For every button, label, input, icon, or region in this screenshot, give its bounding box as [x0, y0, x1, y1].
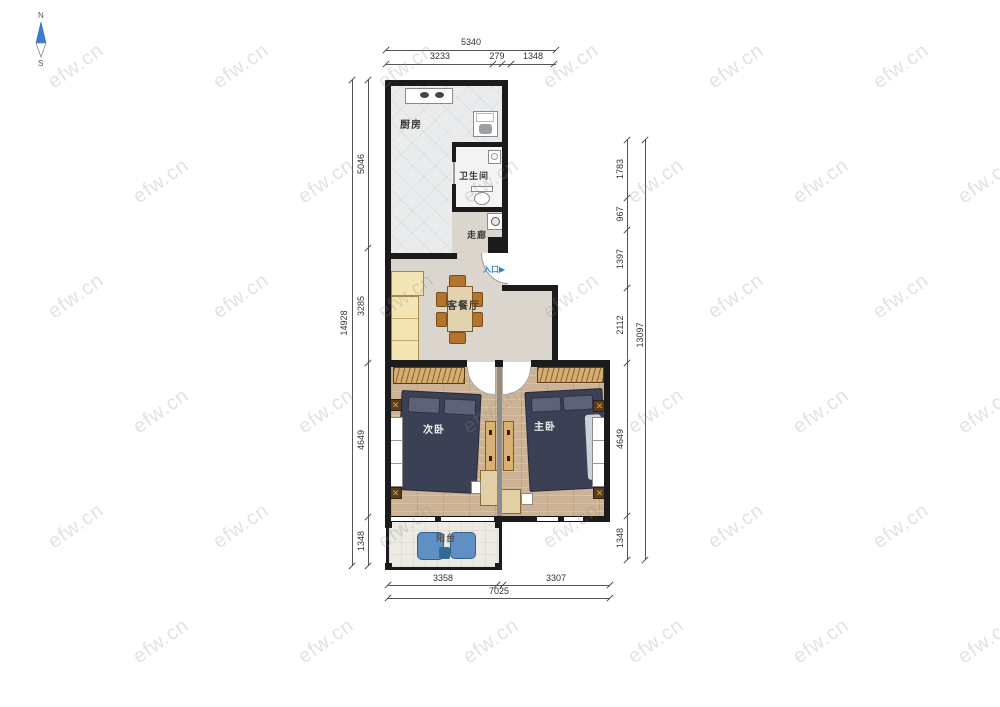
entrance-arrow-icon: ▶: [499, 265, 505, 274]
master-bedroom-label: 主卧: [534, 418, 556, 433]
dimension-label: 3358: [433, 573, 453, 583]
dimension-line: [386, 64, 556, 65]
compass-needle-icon: [33, 21, 49, 59]
window-mullion: [435, 516, 441, 522]
wall: [583, 516, 610, 522]
bedroom-divider-wall: [497, 367, 502, 516]
balcony-floor: [389, 522, 499, 567]
watermark-text: efw.cn: [539, 39, 604, 94]
balcony-table: [439, 547, 450, 559]
wall: [452, 142, 508, 147]
wall: [531, 360, 610, 367]
sofa-cushion-line: [392, 318, 418, 319]
dimension-label: 5340: [461, 37, 481, 47]
dimension-label: 1783: [615, 159, 625, 179]
washer-drum-icon: [491, 217, 500, 226]
closet-unit: [485, 421, 496, 471]
sofa-cushion-line: [392, 340, 418, 341]
dimension-label: 5046: [356, 154, 366, 174]
desk: [500, 489, 521, 514]
window-mullion: [558, 516, 564, 522]
wall: [385, 253, 457, 259]
dimension-label: 14928: [339, 310, 349, 335]
window: [391, 516, 494, 522]
dimension-tick: [623, 556, 630, 563]
dimension-tick: [550, 60, 557, 67]
watermark-text: efw.cn: [209, 39, 274, 94]
dining-chair: [472, 312, 483, 327]
wall: [452, 207, 508, 212]
wall: [604, 360, 610, 522]
watermark-text: efw.cn: [624, 154, 689, 209]
dimension-tick: [348, 562, 355, 569]
watermark-text: efw.cn: [44, 269, 109, 324]
watermark-text: efw.cn: [954, 154, 1000, 209]
entrance-label: 入口▶: [483, 264, 505, 275]
dimension-label: 1348: [523, 51, 543, 61]
balcony-corner: [495, 563, 502, 570]
dimension-label: 4649: [356, 430, 366, 450]
dimension-tick: [552, 46, 559, 53]
closet-unit: [503, 421, 514, 471]
closet-knob: [507, 430, 510, 435]
dimension-line: [368, 80, 369, 566]
watermark-text: efw.cn: [209, 269, 274, 324]
balcony-corner: [385, 563, 392, 570]
compass-south-label: S: [38, 59, 43, 68]
watermark-text: efw.cn: [129, 384, 194, 439]
wardrobe: [393, 367, 465, 384]
dimension-label: 1348: [615, 528, 625, 548]
balcony-corner: [385, 521, 392, 528]
kitchen-label: 厨房: [400, 116, 422, 131]
dimension-label: 1397: [615, 249, 625, 269]
desk-chair: [471, 481, 481, 494]
wall: [452, 147, 456, 162]
watermark-text: efw.cn: [869, 499, 934, 554]
sofa: [391, 296, 419, 362]
compass-north-label: N: [38, 11, 44, 20]
dimension-label: 3233: [430, 51, 450, 61]
living-dining-label: 客餐厅: [447, 297, 480, 312]
dining-chair: [449, 332, 466, 344]
floor-plan-canvas: ✕ ✕ ✕ ✕ 厨房 卫生间 走廊 客餐厅 次卧 主卧 阳台: [0, 0, 1000, 707]
second-bedroom-label: 次卧: [423, 421, 445, 436]
watermark-text: efw.cn: [294, 614, 359, 669]
watermark-text: efw.cn: [624, 384, 689, 439]
kitchen-counter: [405, 88, 453, 104]
dimension-tick: [606, 581, 613, 588]
dimension-label: 3307: [546, 573, 566, 583]
wardrobe: [537, 367, 604, 383]
dining-chair: [436, 312, 447, 327]
watermark-text: efw.cn: [954, 384, 1000, 439]
wall: [385, 360, 467, 367]
living-floor-right: [508, 285, 552, 362]
dimension-line: [645, 140, 646, 560]
watermark-text: efw.cn: [459, 614, 524, 669]
dimension-label: 4649: [615, 429, 625, 449]
dimension-line: [352, 80, 353, 566]
corridor-label: 走廊: [467, 228, 487, 241]
watermark-text: efw.cn: [704, 39, 769, 94]
dimension-label: 1348: [356, 531, 366, 551]
wall-pillar: [488, 237, 506, 253]
watermark-text: efw.cn: [294, 384, 359, 439]
bath-sink-bowl-icon: [491, 153, 498, 160]
watermark-text: efw.cn: [624, 614, 689, 669]
watermark-text: efw.cn: [44, 39, 109, 94]
dimension-line: [627, 140, 628, 560]
sink-bowl-icon: [479, 124, 492, 134]
bathroom-door: [453, 162, 455, 184]
watermark-text: efw.cn: [869, 39, 934, 94]
sink-drainer: [476, 113, 494, 122]
watermark-text: efw.cn: [129, 154, 194, 209]
bed-second-bedroom: [396, 390, 481, 494]
watermark-text: efw.cn: [294, 154, 359, 209]
watermark-text: efw.cn: [869, 269, 934, 324]
balcony-corner: [495, 521, 502, 528]
wall: [385, 80, 508, 86]
watermark-text: efw.cn: [704, 269, 769, 324]
dimension-label: 13097: [635, 322, 645, 347]
watermark-text: efw.cn: [789, 384, 854, 439]
dimension-tick: [641, 556, 648, 563]
wall: [495, 360, 503, 367]
watermark-text: efw.cn: [129, 614, 194, 669]
dimension-label: 967: [615, 206, 625, 221]
toilet-icon: [474, 192, 490, 205]
balcony-wall: [386, 567, 502, 570]
stove-burner-icon: [435, 92, 444, 98]
dimension-label: 7025: [489, 586, 509, 596]
dimension-tick: [364, 562, 371, 569]
closet-knob: [507, 456, 510, 461]
sofa-chaise: [391, 271, 424, 296]
stove-burner-icon: [420, 92, 429, 98]
watermark-text: efw.cn: [789, 614, 854, 669]
wall: [385, 80, 391, 522]
desk-chair: [521, 493, 533, 505]
balcony-label: 阳台: [436, 531, 456, 544]
dimension-line: [388, 598, 610, 599]
dimension-label: 279: [489, 51, 504, 61]
dimension-label: 3285: [356, 296, 366, 316]
dining-chair: [436, 292, 447, 307]
wall: [502, 80, 508, 253]
wall: [552, 285, 558, 367]
closet-knob: [489, 430, 492, 435]
entrance-text: 入口: [483, 265, 499, 274]
watermark-text: efw.cn: [954, 614, 1000, 669]
bathroom-label: 卫生间: [459, 169, 489, 182]
watermark-text: efw.cn: [209, 499, 274, 554]
closet-knob: [489, 456, 492, 461]
wall: [502, 285, 558, 291]
wall: [452, 184, 456, 209]
watermark-text: efw.cn: [704, 499, 769, 554]
watermark-text: efw.cn: [789, 154, 854, 209]
dimension-tick: [606, 594, 613, 601]
dimension-label: 2112: [615, 315, 625, 334]
watermark-text: efw.cn: [44, 499, 109, 554]
